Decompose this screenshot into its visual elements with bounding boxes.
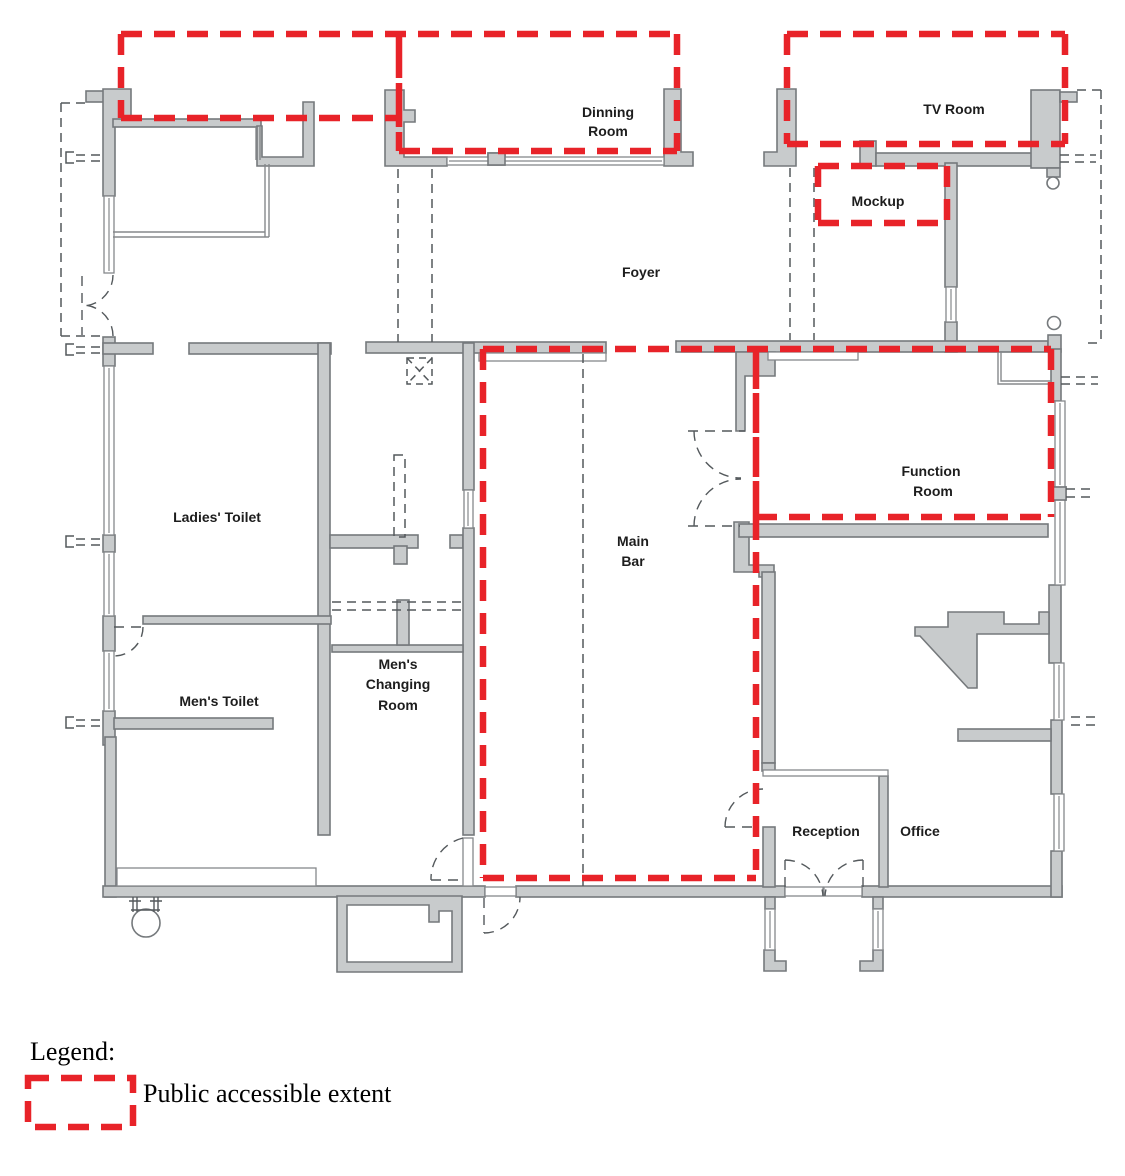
svg-text:Room: Room <box>378 697 418 713</box>
svg-text:Main: Main <box>617 533 649 549</box>
svg-text:Men's: Men's <box>378 656 417 672</box>
svg-text:Room: Room <box>588 123 628 139</box>
svg-text:Foyer: Foyer <box>622 264 661 280</box>
svg-text:Public accessible extent: Public accessible extent <box>143 1079 392 1108</box>
svg-text:Mockup: Mockup <box>852 193 905 209</box>
svg-text:Changing: Changing <box>366 676 431 692</box>
svg-text:Function: Function <box>901 463 960 479</box>
svg-text:Office: Office <box>900 823 940 839</box>
svg-text:Room: Room <box>913 483 953 499</box>
svg-text:Ladies' Toilet: Ladies' Toilet <box>173 509 261 525</box>
svg-text:Men's Toilet: Men's Toilet <box>179 693 259 709</box>
svg-text:Dinning: Dinning <box>582 104 634 120</box>
svg-text:TV Room: TV Room <box>923 101 984 117</box>
svg-text:Reception: Reception <box>792 823 860 839</box>
svg-text:Bar: Bar <box>621 553 645 569</box>
svg-text:Legend:: Legend: <box>30 1037 115 1066</box>
